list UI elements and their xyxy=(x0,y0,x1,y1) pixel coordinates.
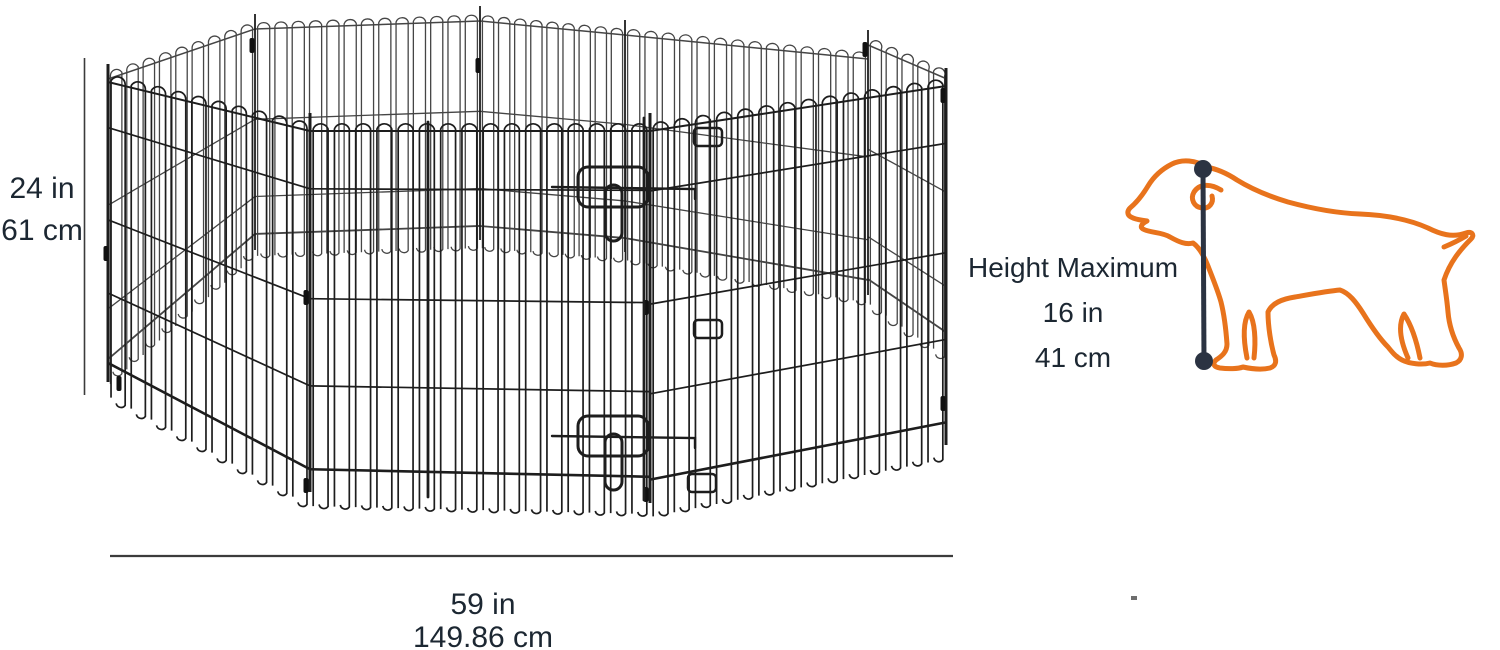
artifact-speck xyxy=(1131,596,1137,600)
product-dimension-diagram: 24 in 61 cm 59 in 149.86 cm Height Maxim… xyxy=(0,0,1500,650)
pen-height-in: 24 in xyxy=(0,168,90,210)
pen-height-cm: 61 cm xyxy=(0,210,90,252)
pen-width-cm: 149.86 cm xyxy=(373,621,593,650)
pen-height-label: 24 in 61 cm xyxy=(0,168,90,252)
dog-front-leg-line xyxy=(1244,312,1255,358)
dog-height-cm: 41 cm xyxy=(948,335,1198,380)
dog-height-title: Height Maximum xyxy=(948,245,1198,290)
diagram-artwork xyxy=(0,0,1500,650)
dog-height-in: 16 in xyxy=(948,290,1198,335)
dog-hind-leg-line xyxy=(1401,314,1420,358)
dog-height-label: Height Maximum 16 in 41 cm xyxy=(948,245,1198,380)
measure-dot-top xyxy=(1194,160,1212,178)
pen-width-in: 59 in xyxy=(373,588,593,621)
playpen-illustration xyxy=(104,6,948,516)
pen-width-label: 59 in 149.86 cm xyxy=(373,588,593,650)
dog-ear-line xyxy=(1192,185,1221,208)
